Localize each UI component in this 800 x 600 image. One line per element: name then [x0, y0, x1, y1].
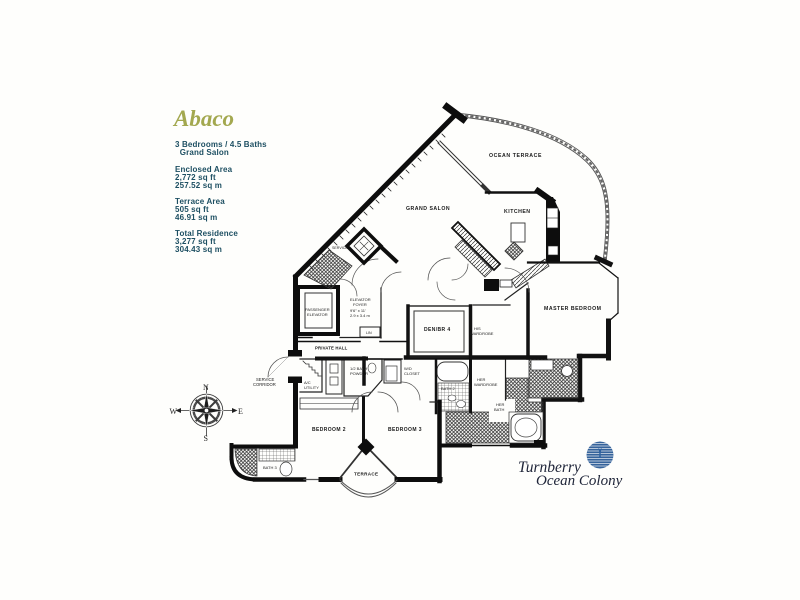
svg-text:N: N — [203, 383, 209, 392]
svg-text:W: W — [170, 407, 178, 416]
svg-text:BEDROOM 3: BEDROOM 3 — [388, 427, 422, 433]
svg-text:TERRACE: TERRACE — [354, 472, 378, 477]
svg-text:CORRIDOR: CORRIDOR — [253, 382, 276, 387]
svg-text:BATH 2: BATH 2 — [441, 386, 455, 391]
svg-text:CLOSET: CLOSET — [404, 371, 421, 376]
svg-text:S: S — [204, 434, 208, 443]
svg-text:PRIVATE HALL: PRIVATE HALL — [315, 346, 348, 351]
svg-text:E: E — [238, 407, 243, 416]
svg-text:BATH: BATH — [494, 407, 504, 412]
svg-text:KITCHEN: KITCHEN — [504, 209, 531, 215]
svg-text:FOYER: FOYER — [353, 302, 367, 307]
svg-text:WARDROBE: WARDROBE — [474, 382, 498, 387]
svg-text:BATH 3: BATH 3 — [263, 465, 277, 470]
svg-text:ELEVATOR: ELEVATOR — [307, 312, 328, 317]
svg-text:MASTER BEDROOM: MASTER BEDROOM — [544, 306, 601, 312]
svg-text:OCEAN TERRACE: OCEAN TERRACE — [489, 153, 542, 159]
svg-text:2.9 x 3.4 m: 2.9 x 3.4 m — [350, 313, 370, 318]
svg-text:Ocean Colony: Ocean Colony — [536, 473, 623, 489]
svg-text:WARDROBE: WARDROBE — [470, 331, 494, 336]
svg-text:GRAND SALON: GRAND SALON — [406, 206, 450, 212]
svg-text:SERVICE: SERVICE — [332, 246, 348, 250]
svg-text:DEN/BR 4: DEN/BR 4 — [424, 327, 451, 333]
svg-text:LIN: LIN — [366, 331, 372, 335]
svg-text:UTILITY: UTILITY — [304, 385, 319, 390]
svg-text:BEDROOM 2: BEDROOM 2 — [312, 427, 346, 433]
